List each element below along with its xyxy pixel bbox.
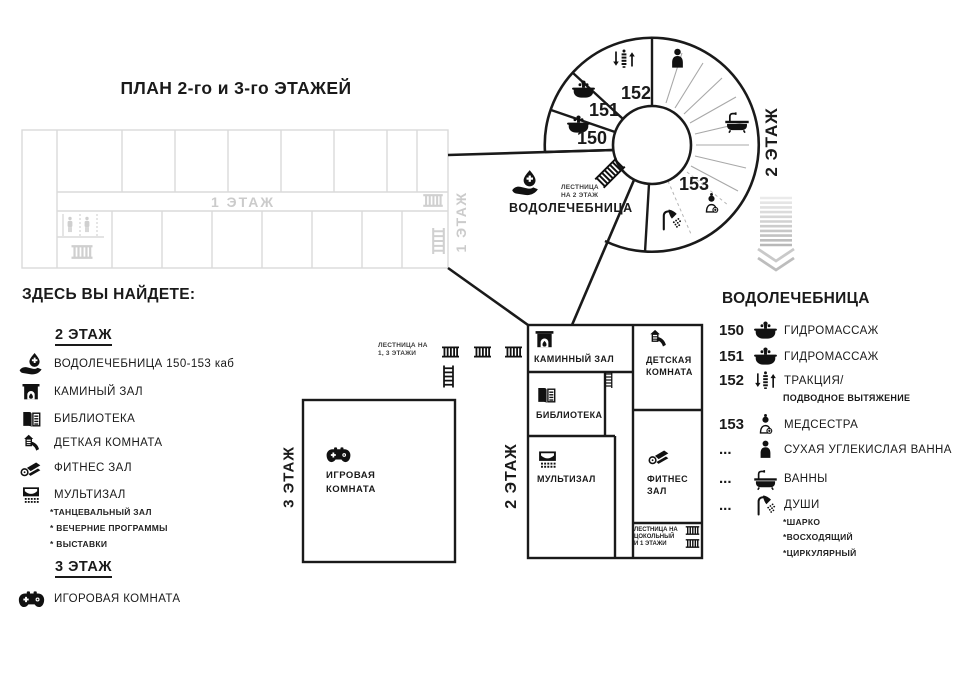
room-label-fitness: ФИТНЕС ЗАЛ [647, 473, 688, 497]
scroll-down-indicator [758, 198, 794, 270]
row-number: ... [719, 470, 749, 487]
water-hand-icon [16, 352, 46, 376]
row-label: ДУШИ [784, 499, 820, 511]
book-icon [538, 388, 554, 403]
book-icon [16, 409, 46, 430]
fitness-mat-icon [649, 451, 668, 464]
stairs-basement-note: ЛЕСТНИЦА НА ЦОКОЛЬНЫЙ И 1 ЭТАЖИ [634, 527, 678, 549]
stairs-icon [505, 347, 522, 356]
room-label-kids-room: ДЕТСКАЯ КОМНАТА [646, 354, 693, 378]
floor3-side-label: 3 ЭТАЖ [281, 446, 298, 508]
row-number: 150 [719, 322, 749, 339]
ladder-icon [605, 372, 612, 388]
legend-row-dry-bath: ... СУХАЯ УГЛЕКИСЛАЯ ВАННА [719, 439, 952, 460]
multihall-note: *ТАНЦЕВАЛЬНЫЙ ЗАЛ [50, 507, 152, 517]
shower-note: *ШАРКО [783, 517, 820, 527]
legend-item-label: КАМИНЫЙ ЗАЛ [54, 386, 143, 398]
floor1-wc-icons [68, 217, 90, 232]
legend-row-152: 152 ТРАКЦИЯ/ [719, 369, 844, 392]
row-number: ... [719, 497, 749, 514]
chevron-down-icon [758, 249, 794, 261]
room-label-line: ДЕТСКАЯ [646, 354, 693, 366]
note-line: ЦОКОЛЬНЫЙ [634, 534, 678, 541]
note-line: И 1 ЭТАЖИ [634, 541, 678, 548]
fireplace-icon [536, 331, 554, 347]
legend-row-153: 153 МЕДСЕСТРА [719, 413, 858, 436]
stairs-icon [442, 347, 459, 356]
legend-item-library: БИБЛИОТЕКА [16, 406, 135, 432]
room-label-library: БИБЛИОТЕКА [536, 409, 602, 421]
hydromassage-tub-icon [752, 344, 779, 369]
rotunda-diagram [512, 38, 759, 252]
gamepad-icon [327, 447, 351, 462]
floor2-side-label: 2 ЭТАЖ [503, 443, 521, 509]
row-label: ГИДРОМАССАЖ [784, 325, 879, 337]
legend-left-heading: ЗДЕСЬ ВЫ НАЙДЕТЕ: [22, 286, 195, 304]
row-label: ТРАКЦИЯ/ [784, 375, 844, 387]
row-label: ВАННЫ [784, 473, 828, 485]
traction-icon [752, 369, 779, 392]
slide-icon [16, 433, 46, 454]
mid-stairs-icons [442, 347, 522, 387]
legend-row-baths: ... ВАННЫ [719, 466, 828, 491]
note-line: 1, 3 ЭТАЖИ [378, 350, 428, 358]
note-line: ЛЕСТНИЦА НА [378, 342, 428, 350]
room-label-line: КОМНАТА [326, 483, 376, 497]
person-icon [752, 439, 779, 460]
row-label: СУХАЯ УГЛЕКИСЛАЯ ВАННА [784, 444, 952, 456]
room-label-line: КОМНАТА [646, 366, 693, 378]
legend-item-water-therapy: ВОДОЛЕЧЕБНИЦА 150-153 каб [16, 351, 234, 377]
row-number: 153 [719, 416, 749, 433]
legend-row-151: 151 ГИДРОМАССАЖ [719, 344, 879, 369]
hydromassage-tub-icon [752, 318, 779, 343]
room-label-line: ЗАЛ [647, 485, 688, 497]
screen-icon [539, 451, 556, 467]
floor1-side-label: 1 ЭТАЖ [453, 191, 469, 252]
bath-icon [725, 112, 748, 132]
legend-row-150: 150 ГИДРОМАССАЖ [719, 318, 879, 343]
legend-item-fireplace-hall: КАМИНЫЙ ЗАЛ [16, 379, 143, 405]
room-label-multihall: МУЛЬТИЗАЛ [537, 473, 596, 485]
legend-floor3-heading: 3 ЭТАЖ [55, 559, 112, 578]
room-label-line: ФИТНЕС [647, 473, 688, 485]
room-number-150: 150 [572, 128, 612, 149]
hydromassage-tub-icon [572, 81, 595, 98]
row-number: 152 [719, 372, 749, 389]
traction-icon [613, 50, 635, 68]
legend-item-fitness: ФИТНЕС ЗАЛ [16, 455, 132, 481]
row-number: 151 [719, 348, 749, 365]
legend-item-label: ДЕТКАЯ КОМНАТА [54, 437, 162, 449]
floor1-corridor-label: 1 ЭТАЖ [173, 194, 313, 210]
screen-icon [16, 485, 46, 505]
page-title: ПЛАН 2-го и 3-го ЭТАЖЕЙ [56, 78, 416, 99]
legend-item-label: МУЛЬТИЗАЛ [54, 489, 126, 501]
legend-item-label: БИБЛИОТЕКА [54, 413, 135, 425]
legend-item-multihall: МУЛЬТИЗАЛ [16, 482, 126, 508]
shower-note: *ВОСХОДЯЩИЙ [783, 532, 853, 542]
slide-icon [650, 330, 666, 347]
stairs-icon [433, 228, 444, 254]
legend-item-label: ВОДОЛЕЧЕБНИЦА 150-153 каб [54, 358, 234, 370]
legend-item-kids-room: ДЕТКАЯ КОМНАТА [16, 430, 162, 456]
rotunda-side-label: 2 ЭТАЖ [762, 107, 782, 176]
fitness-mat-icon [16, 457, 46, 479]
traction-sub-label: ПОДВОДНОЕ ВЫТЯЖЕНИЕ [783, 393, 910, 403]
legend-item-game-room: ИГОРОВАЯ КОМНАТА [16, 586, 181, 612]
wc-person-icon [68, 217, 73, 232]
legend-row-showers: ... ДУШИ [719, 493, 820, 517]
stairs-to-floor2-note: ЛЕСТНИЦА НА 2 ЭТАЖ [561, 184, 599, 199]
stairs-icon [72, 246, 93, 257]
shower-icon [752, 493, 779, 517]
gamepad-icon [16, 591, 46, 608]
row-number: ... [719, 441, 749, 458]
note-line: НА 2 ЭТАЖ [561, 192, 599, 200]
shower-icon [664, 210, 681, 230]
stairs-icon [474, 347, 491, 356]
stairs-icon [686, 527, 700, 534]
stairs-icon [686, 540, 700, 547]
legend-right-heading: ВОДОЛЕЧЕБНИЦА [722, 290, 870, 308]
room-label-fireplace-hall: КАМИННЫЙ ЗАЛ [534, 353, 614, 365]
water-hand-icon [512, 170, 538, 195]
nurse-icon [752, 413, 779, 436]
stairs-mid-note: ЛЕСТНИЦА НА 1, 3 ЭТАЖИ [378, 342, 428, 357]
rotunda-label: ВОДОЛЕЧЕБНИЦА [509, 201, 633, 215]
room-number-152: 152 [616, 83, 656, 104]
row-label: ГИДРОМАССАЖ [784, 351, 879, 363]
legend-floor2-heading: 2 ЭТАЖ [55, 327, 112, 346]
person-icon [672, 49, 683, 68]
wc-person-icon [85, 217, 90, 232]
stairs-icon [423, 195, 443, 206]
rotunda-inner-ring [613, 106, 691, 184]
room-number-153: 153 [674, 174, 714, 195]
legend-item-label: ИГОРОВАЯ КОМНАТА [54, 593, 181, 605]
legend-item-label: ФИТНЕС ЗАЛ [54, 462, 132, 474]
bath-icon [752, 466, 779, 491]
row-label: МЕДСЕСТРА [784, 419, 858, 431]
fireplace-icon [16, 382, 46, 402]
multihall-note: * ВЫСТАВКИ [50, 539, 107, 549]
room-label-game-room: ИГРОВАЯ КОМНАТА [326, 469, 376, 496]
note-line: ЛЕСТНИЦА [561, 184, 599, 192]
shower-note: *ЦИРКУЛЯРНЫЙ [783, 548, 857, 558]
floor-plan-poster: ПЛАН 2-го и 3-го ЭТАЖЕЙ 1 ЭТАЖ 1 ЭТАЖ 15… [0, 0, 980, 691]
multihall-note: * ВЕЧЕРНИЕ ПРОГРАММЫ [50, 523, 168, 533]
room-label-line: ИГРОВАЯ [326, 469, 376, 483]
ladder-icon [444, 366, 453, 388]
